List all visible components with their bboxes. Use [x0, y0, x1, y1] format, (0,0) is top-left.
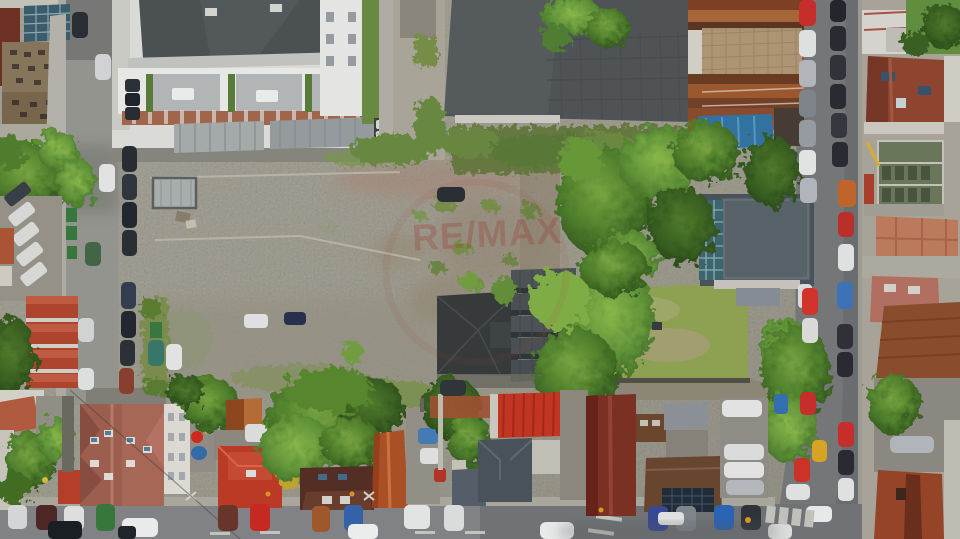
- svg-text:RE/MAX: RE/MAX: [411, 210, 563, 259]
